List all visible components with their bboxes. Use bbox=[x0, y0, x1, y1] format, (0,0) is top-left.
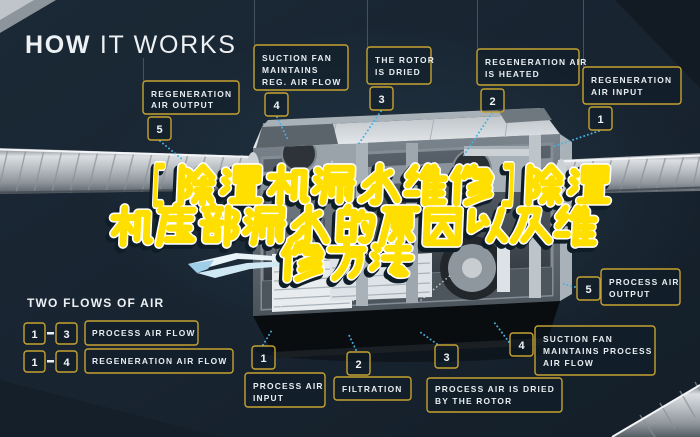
svg-text:OUTPUT: OUTPUT bbox=[609, 289, 651, 299]
svg-text:FILTRATION: FILTRATION bbox=[342, 384, 403, 394]
svg-text:PROCESS AIR IS DRIED: PROCESS AIR IS DRIED bbox=[435, 384, 555, 394]
svg-text:INPUT: INPUT bbox=[253, 393, 284, 403]
svg-text:SUCTION FAN: SUCTION FAN bbox=[543, 334, 613, 344]
svg-text:BY THE ROTOR: BY THE ROTOR bbox=[435, 396, 512, 406]
svg-text:PROCESS AIR: PROCESS AIR bbox=[609, 277, 680, 287]
svg-text:PROCESS AIR: PROCESS AIR bbox=[253, 381, 324, 391]
svg-text:AIR OUTPUT: AIR OUTPUT bbox=[151, 100, 214, 110]
svg-text:3: 3 bbox=[443, 352, 449, 364]
svg-text:REGENERATION AIR: REGENERATION AIR bbox=[485, 57, 588, 67]
svg-text:THE ROTOR: THE ROTOR bbox=[375, 55, 435, 65]
svg-text:4: 4 bbox=[273, 100, 280, 112]
svg-text:IS DRIED: IS DRIED bbox=[375, 67, 421, 77]
svg-text:AIR FLOW: AIR FLOW bbox=[543, 358, 594, 368]
svg-text:MAINTAINS: MAINTAINS bbox=[262, 65, 319, 75]
svg-text:MAINTAINS PROCESS: MAINTAINS PROCESS bbox=[543, 346, 653, 356]
svg-text:1: 1 bbox=[31, 329, 37, 341]
svg-text:2: 2 bbox=[489, 96, 495, 108]
svg-text:5: 5 bbox=[156, 124, 162, 136]
svg-text:2: 2 bbox=[355, 359, 361, 371]
svg-text:TWO FLOWS OF AIR: TWO FLOWS OF AIR bbox=[27, 296, 164, 310]
svg-text:PROCESS AIR FLOW: PROCESS AIR FLOW bbox=[92, 328, 196, 338]
svg-text:REGENERATION AIR FLOW: REGENERATION AIR FLOW bbox=[92, 356, 227, 366]
svg-text:4: 4 bbox=[518, 340, 525, 352]
svg-text:4: 4 bbox=[63, 357, 70, 369]
svg-text:REG. AIR FLOW: REG. AIR FLOW bbox=[262, 77, 342, 87]
svg-text:AIR INPUT: AIR INPUT bbox=[591, 87, 644, 97]
svg-text:3: 3 bbox=[63, 329, 69, 341]
svg-text:IS HEATED: IS HEATED bbox=[485, 69, 540, 79]
svg-text:1: 1 bbox=[597, 114, 603, 126]
svg-text:HOW IT WORKS: HOW IT WORKS bbox=[25, 31, 237, 59]
svg-text:5: 5 bbox=[585, 284, 591, 296]
svg-text:SUCTION FAN: SUCTION FAN bbox=[262, 53, 332, 63]
svg-text:1: 1 bbox=[260, 353, 266, 365]
svg-text:REGENERATION: REGENERATION bbox=[591, 75, 672, 85]
svg-text:1: 1 bbox=[31, 357, 37, 369]
svg-text:3: 3 bbox=[378, 94, 384, 106]
svg-text:REGENERATION: REGENERATION bbox=[151, 89, 232, 99]
